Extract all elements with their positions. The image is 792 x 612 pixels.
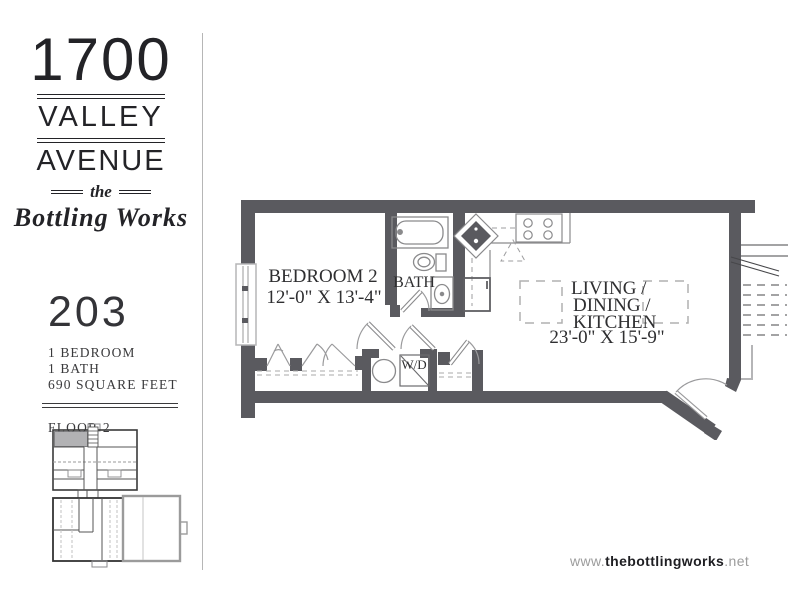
bathtub xyxy=(392,217,448,248)
brand-the-row: the xyxy=(0,182,202,202)
closet-doors xyxy=(267,344,355,366)
brand-the: the xyxy=(90,182,112,202)
rule-right xyxy=(119,190,151,194)
double-rule xyxy=(37,138,165,143)
unit-203-highlight xyxy=(55,432,88,447)
walls xyxy=(241,200,755,418)
bedroom-label: BEDROOM 2 xyxy=(268,266,377,287)
double-rule xyxy=(37,94,165,99)
stair-landing-edge xyxy=(741,345,752,379)
bath-label: BATH xyxy=(393,274,435,291)
url-prefix: www. xyxy=(570,553,605,569)
rule-left xyxy=(51,190,83,194)
unit-bedrooms: 1 BEDROOM xyxy=(48,345,178,361)
key-plan xyxy=(45,418,193,573)
bedroom-dims: 12'-0" X 13'-4" xyxy=(266,287,381,308)
toilet xyxy=(414,254,447,272)
living-dims: 23'-0" X 15'-9" xyxy=(549,327,664,348)
kitchen-counter xyxy=(488,213,570,278)
url-domain: thebottlingworks xyxy=(605,553,724,569)
window xyxy=(236,264,256,345)
refrigerator xyxy=(464,278,490,311)
unit-number: 203 xyxy=(48,288,178,337)
double-rule xyxy=(42,403,178,408)
wd-label: W/D xyxy=(401,357,426,372)
floor-plan: BEDROOM 2 12'-0" X 13'-4" BATH LIVING / … xyxy=(230,195,792,440)
unit-baths: 1 BATH xyxy=(48,361,178,377)
stove xyxy=(516,214,562,242)
brand-valley: VALLEY xyxy=(0,102,202,134)
washer xyxy=(373,360,396,383)
brand-bottling-works: Bottling Works xyxy=(0,203,202,233)
brand-avenue: AVENUE xyxy=(0,146,202,178)
brand-1700: 1700 xyxy=(0,30,202,90)
vertical-divider xyxy=(202,33,203,570)
unit-area: 690 SQUARE FEET xyxy=(48,377,178,393)
url-suffix: .net xyxy=(724,553,749,569)
brand-logo: 1700 VALLEY AVENUE the Bottling Works xyxy=(0,30,202,233)
website-link[interactable]: www.thebottlingworks.net xyxy=(570,553,749,569)
unit-info: 203 1 BEDROOM 1 BATH 690 SQUARE FEET FLO… xyxy=(48,288,178,436)
